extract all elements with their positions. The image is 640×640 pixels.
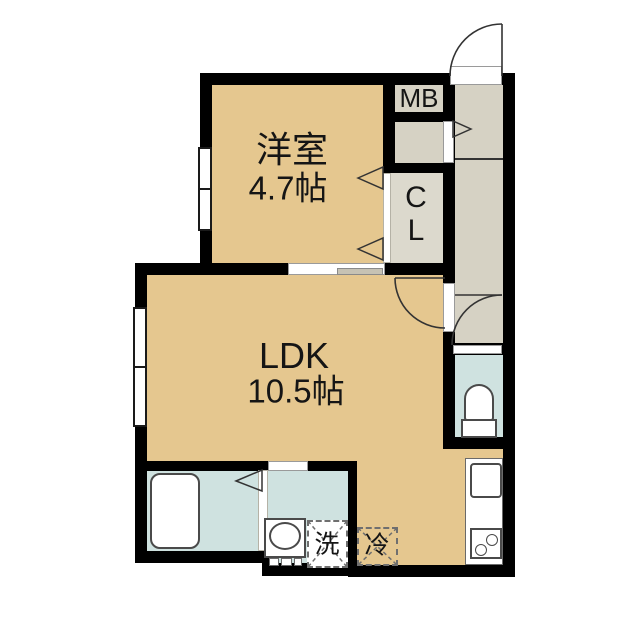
toilet-bowl [464,384,494,421]
wall-right [503,73,515,577]
hallway-floor [455,85,503,345]
western-room-size: 4.7帖 [249,172,328,205]
ldk-size: 10.5帖 [247,375,344,408]
stove-burner-right [486,534,498,546]
wall-bottom [348,565,515,577]
wall-washroom-right [348,461,357,577]
entry-step-line [455,158,503,160]
refrigerator-label: 冷 [364,534,389,559]
vanity-cabinet-2 [281,558,292,566]
floor-plan: 洋室 4.7帖 LDK 10.5帖 MB C L 洗 冷 [0,0,640,640]
toilet-door-opening [453,345,502,354]
western-room-label: 洋室 [256,132,328,168]
ldk-door-opening [443,283,455,332]
western-room-window-tick [198,188,212,190]
closet-open-side [383,173,391,263]
entrance-door-opening [450,66,502,85]
washroom-door-opening [268,461,308,471]
storage-floor [395,122,443,163]
ldk-label: LDK [259,338,329,374]
vanity-basin [269,522,301,550]
storage-door-opening [443,121,454,163]
stove-burner-left [475,544,487,556]
kitchen-sink [470,463,502,498]
wall-bathroom-bottom [135,551,270,563]
sliding-door-panel [337,268,383,275]
meter-box-label: MB [400,85,439,111]
vanity-cabinet-1 [269,558,279,566]
vanity-cabinet-3 [294,558,302,566]
wall-western-room-right [383,73,395,173]
ldk-window-tick [133,366,147,368]
closet-label: C L [405,181,427,247]
bathtub [150,473,200,549]
wall-bathroom-top [135,461,357,471]
toilet-tank [461,419,497,438]
kitchen-stove [470,528,502,559]
washing-machine-label: 洗 [314,533,339,558]
wall-toilet-bottom [443,437,515,449]
closet-label-line2: L [408,214,425,247]
closet-label-line1: C [405,181,427,214]
